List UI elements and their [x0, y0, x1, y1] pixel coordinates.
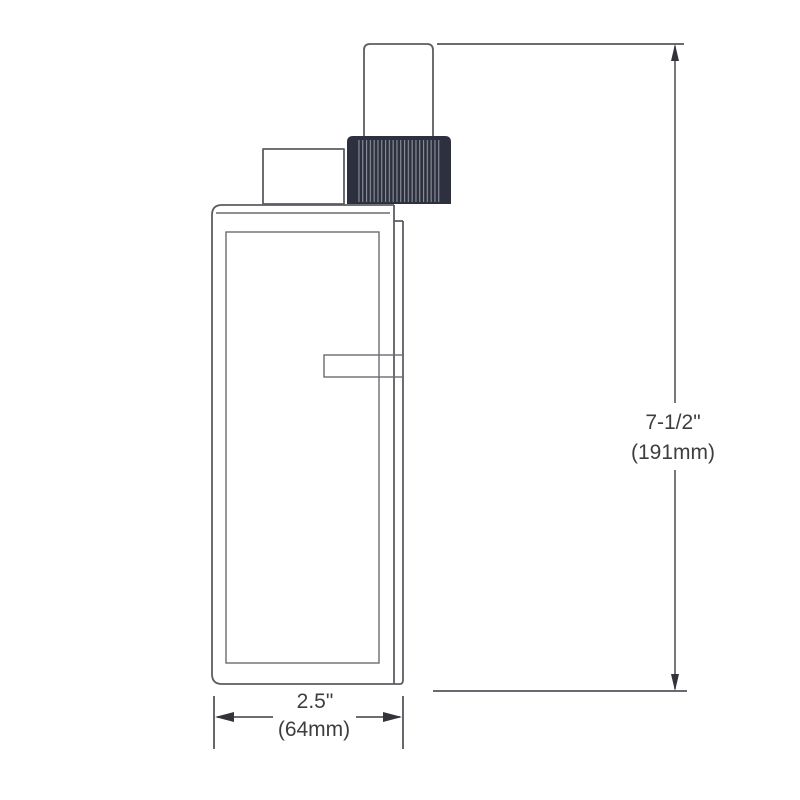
top-cap: [263, 149, 344, 204]
product-dimension-diagram: 7-1/2" (191mm) 2.5" (64mm): [0, 0, 800, 800]
side-bracket-bar: [324, 355, 403, 377]
width-dimension-label-mm: (64mm): [278, 718, 350, 741]
knob-knurling-texture: [356, 140, 442, 202]
width-dimension-label-inches: 2.5": [297, 690, 334, 713]
body-inner-panel: [226, 232, 379, 663]
arrow-left-icon: [215, 712, 234, 722]
product-side-view: [212, 44, 451, 684]
height-dimension-label-mm: (191mm): [631, 441, 715, 464]
width-dimension: 2.5" (64mm): [214, 690, 403, 749]
arrow-up-icon: [671, 44, 679, 61]
arrow-down-icon: [671, 674, 679, 691]
arrow-right-icon: [383, 712, 402, 722]
height-dimension: 7-1/2" (191mm): [433, 44, 715, 691]
cylinder-shank: [364, 44, 433, 142]
body-outer-outline: [212, 205, 403, 684]
technical-drawing-canvas: 7-1/2" (191mm) 2.5" (64mm): [0, 0, 800, 800]
height-dimension-label-inches: 7-1/2": [645, 411, 700, 434]
body-right-step: [394, 205, 403, 221]
